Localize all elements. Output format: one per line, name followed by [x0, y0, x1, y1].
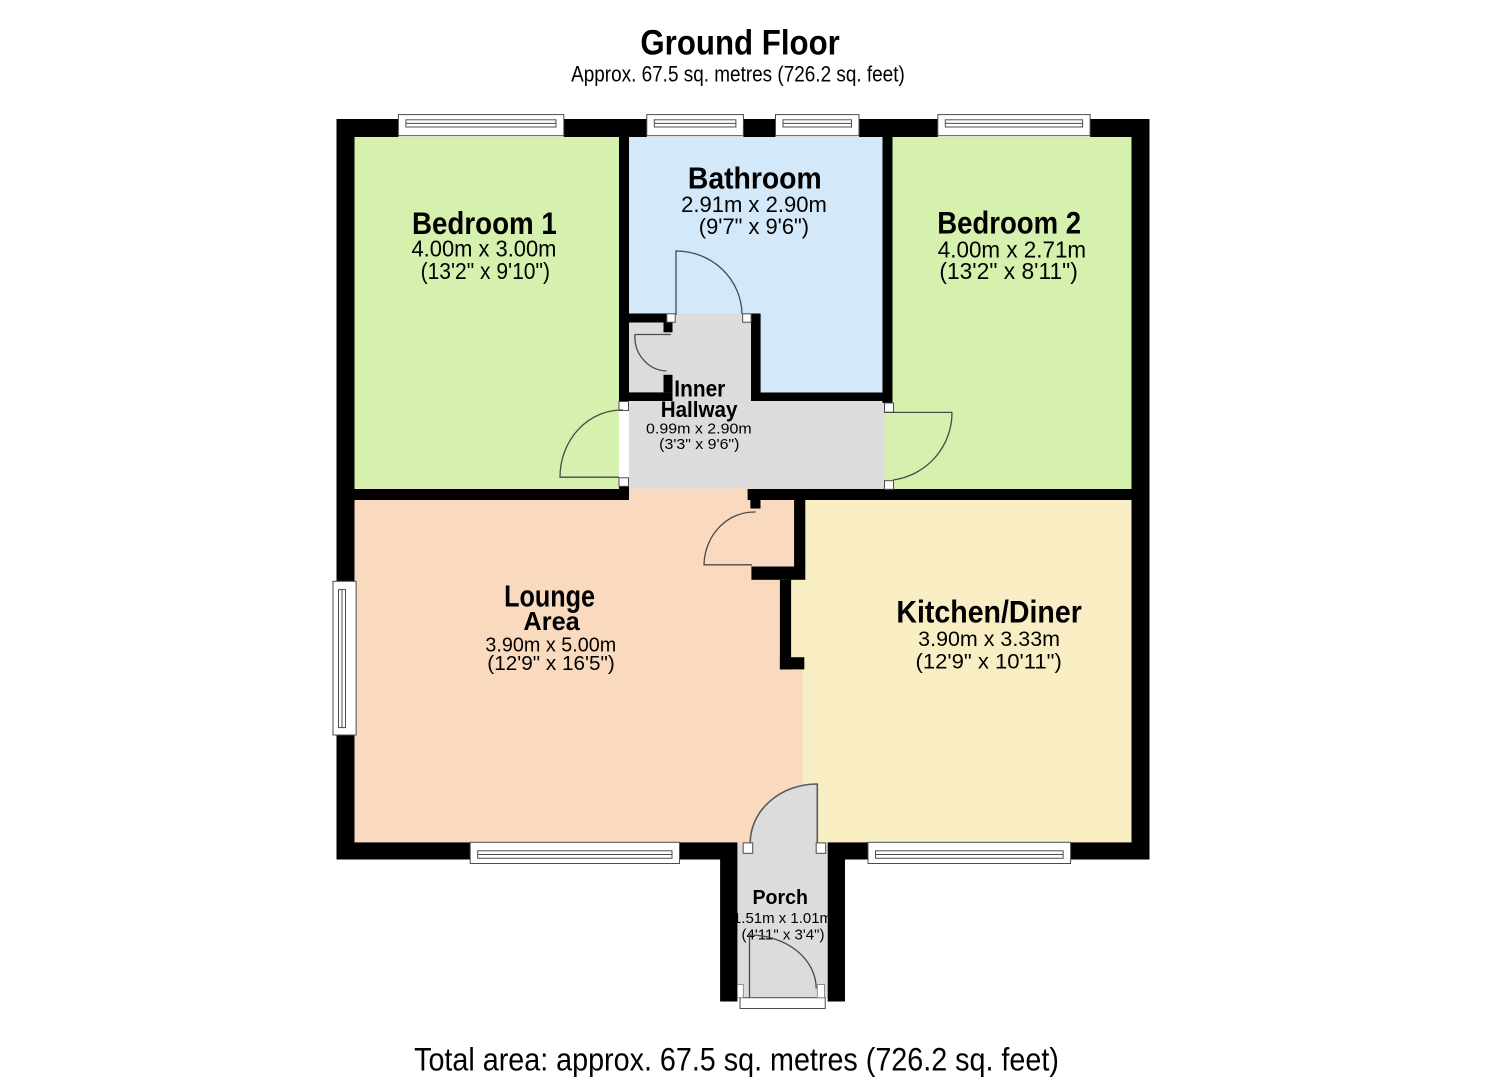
svg-text:(12'9" x 10'11"): (12'9" x 10'11")	[916, 650, 1062, 673]
svg-text:0.99m x 2.90m: 0.99m x 2.90m	[646, 420, 752, 437]
svg-text:Hallway: Hallway	[661, 397, 739, 422]
svg-text:Ground Floor: Ground Floor	[640, 24, 840, 63]
svg-text:Approx. 67.5 sq. metres (726.2: Approx. 67.5 sq. metres (726.2 sq. feet)	[571, 62, 905, 87]
svg-text:Porch: Porch	[753, 887, 809, 909]
svg-text:1.51m x 1.01m: 1.51m x 1.01m	[733, 910, 832, 927]
svg-text:Total area: approx. 67.5 sq. m: Total area: approx. 67.5 sq. metres (726…	[414, 1042, 1059, 1078]
svg-text:Area: Area	[523, 606, 580, 636]
svg-text:Bathroom: Bathroom	[688, 161, 822, 196]
svg-text:(12'9" x 16'5"): (12'9" x 16'5")	[487, 652, 615, 675]
svg-text:(9'7" x 9'6"): (9'7" x 9'6")	[699, 214, 809, 239]
svg-text:(13'2" x 8'11"): (13'2" x 8'11")	[939, 258, 1077, 284]
svg-text:(13'2" x 9'10"): (13'2" x 9'10")	[421, 258, 550, 284]
svg-text:Bedroom 2: Bedroom 2	[937, 205, 1081, 241]
svg-text:Kitchen/Diner: Kitchen/Diner	[896, 594, 1081, 630]
svg-text:(3'3" x 9'6"): (3'3" x 9'6")	[659, 436, 739, 453]
svg-text:3.90m x 3.33m: 3.90m x 3.33m	[918, 628, 1060, 651]
